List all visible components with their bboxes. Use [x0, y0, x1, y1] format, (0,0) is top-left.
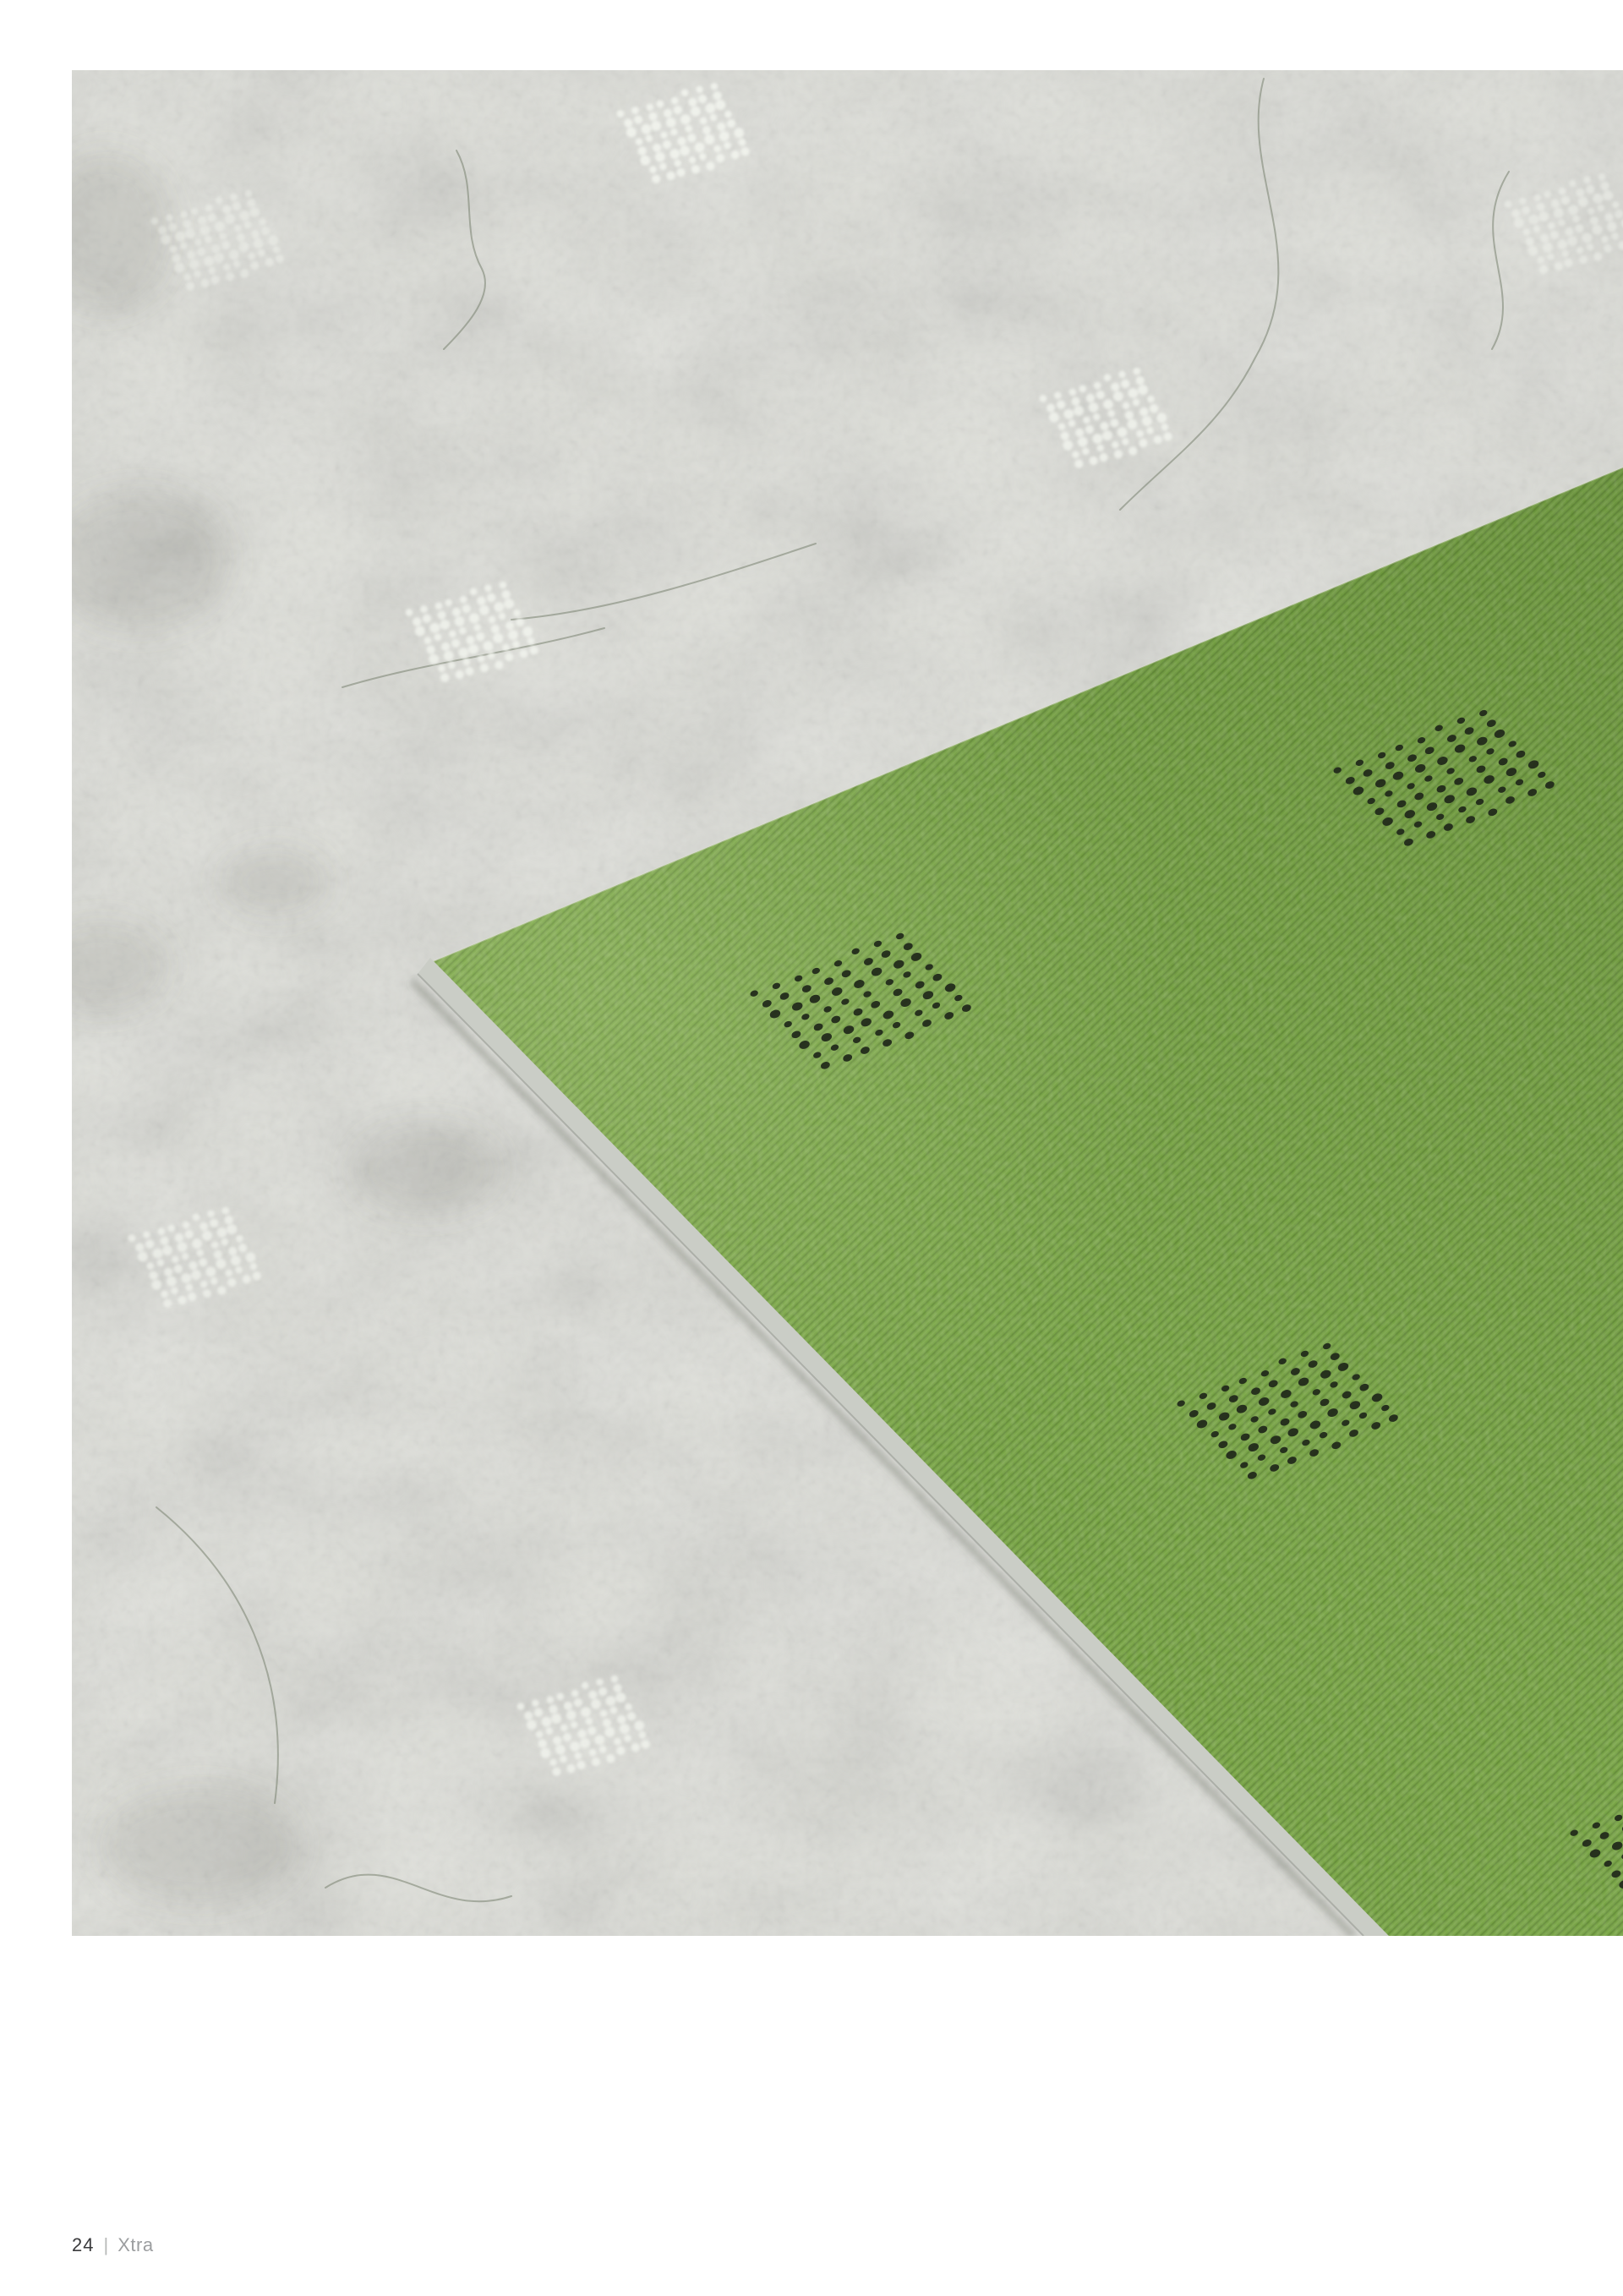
footer-separator: |: [103, 2234, 108, 2256]
photo-canvas: [72, 70, 1623, 1936]
page-footer: 24 | Xtra: [72, 2234, 154, 2256]
footer-title: Xtra: [117, 2234, 153, 2256]
rug-photo: [72, 70, 1623, 1936]
catalog-page: 24 | Xtra: [0, 0, 1623, 2296]
page-number: 24: [72, 2234, 94, 2256]
